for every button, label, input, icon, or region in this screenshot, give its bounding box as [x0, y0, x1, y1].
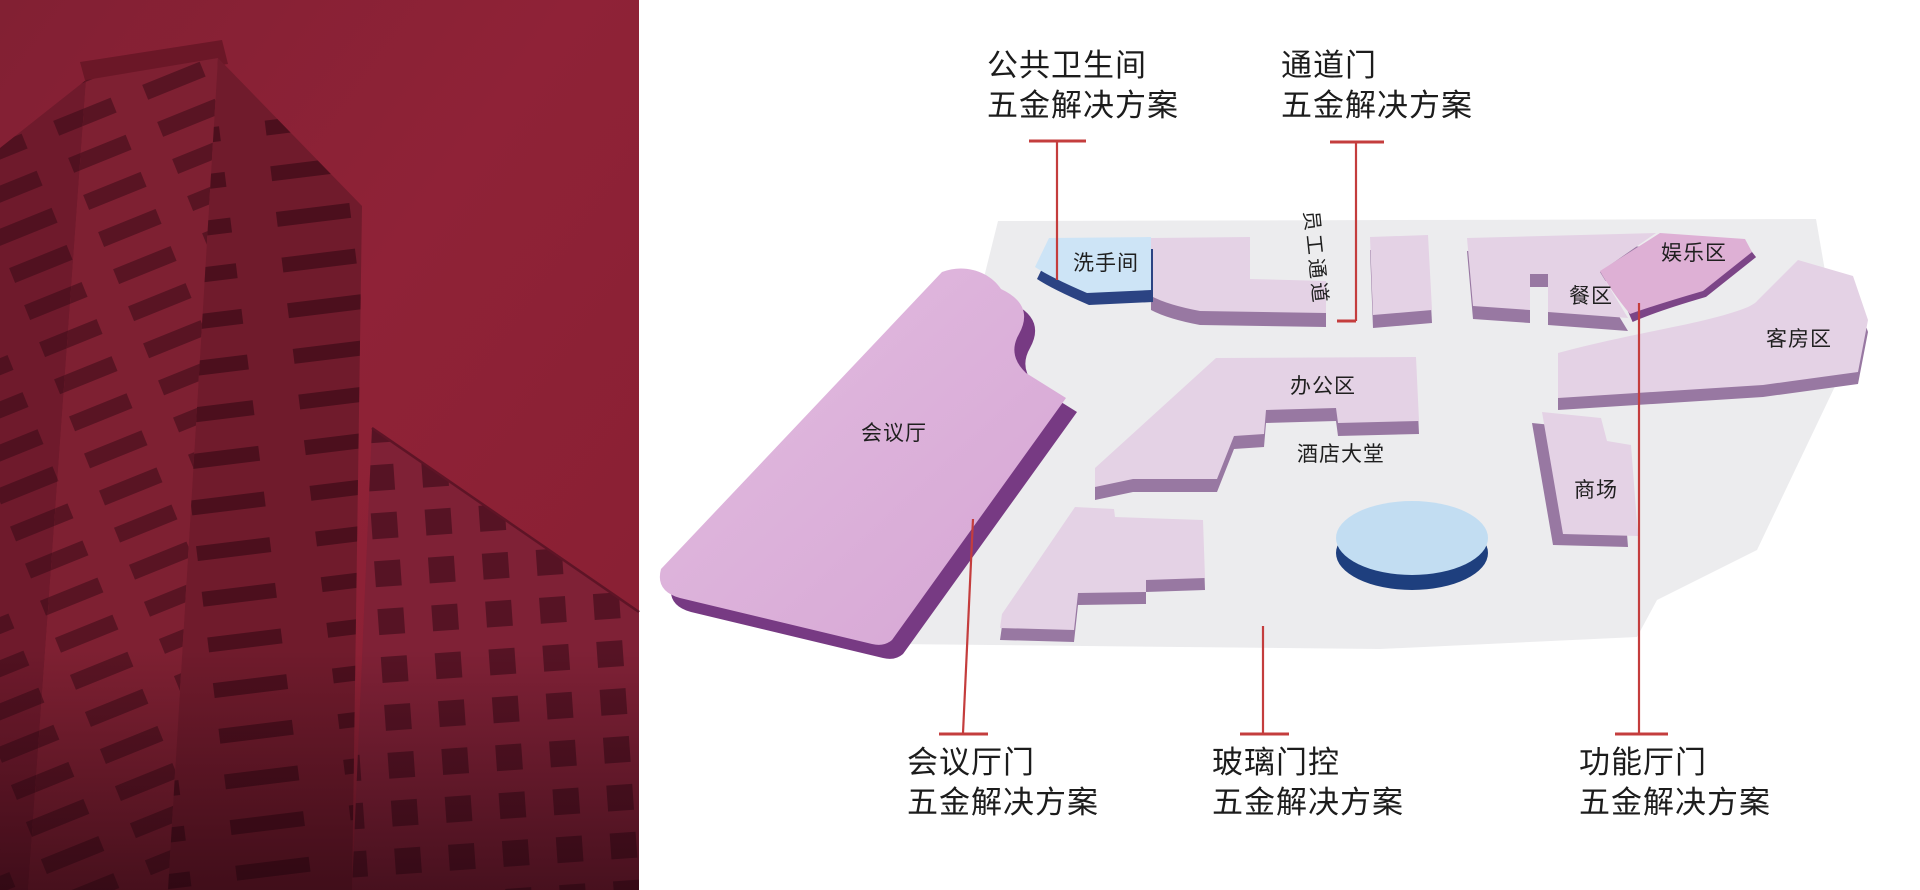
callout-line1: 通道门	[1281, 46, 1473, 86]
callout-line1: 玻璃门控	[1212, 743, 1404, 783]
area-label-hotel-lobby: 酒店大堂	[1297, 438, 1385, 468]
callout-glass-door-control: 玻璃门控 五金解决方案	[1212, 743, 1404, 823]
area-label-office: 办公区	[1290, 370, 1356, 400]
callout-conference-hall-door: 会议厅门 五金解决方案	[907, 743, 1099, 823]
callout-public-restroom: 公共卫生间 五金解决方案	[987, 46, 1179, 126]
area-label-dining: 餐区	[1569, 280, 1613, 310]
area-label-guest-rooms: 客房区	[1766, 323, 1832, 353]
area-label-entertainment: 娱乐区	[1661, 237, 1727, 267]
callout-line2: 五金解决方案	[1281, 86, 1473, 126]
callout-line1: 公共卫生间	[987, 46, 1179, 86]
callout-line2: 五金解决方案	[1579, 783, 1771, 823]
floorplan	[660, 141, 1868, 734]
callout-function-hall-door: 功能厅门 五金解决方案	[1579, 743, 1771, 823]
area-label-conference: 会议厅	[861, 417, 927, 447]
callout-line2: 五金解决方案	[907, 783, 1099, 823]
callout-line2: 五金解决方案	[987, 86, 1179, 126]
callout-passage-door: 通道门 五金解决方案	[1281, 46, 1473, 126]
callout-line1: 会议厅门	[907, 743, 1099, 783]
area-label-mall: 商场	[1574, 474, 1618, 504]
callout-line1: 功能厅门	[1579, 743, 1771, 783]
building-photo	[0, 0, 639, 890]
area-label-washroom: 洗手间	[1073, 247, 1139, 277]
block-north-right	[1370, 235, 1432, 328]
fountain-circle	[1336, 501, 1488, 590]
hotel-hardware-solutions-banner: 公共卫生间 五金解决方案 通道门 五金解决方案 会议厅门 五金解决方案 玻璃门控…	[0, 0, 1920, 890]
callout-line2: 五金解决方案	[1212, 783, 1404, 823]
